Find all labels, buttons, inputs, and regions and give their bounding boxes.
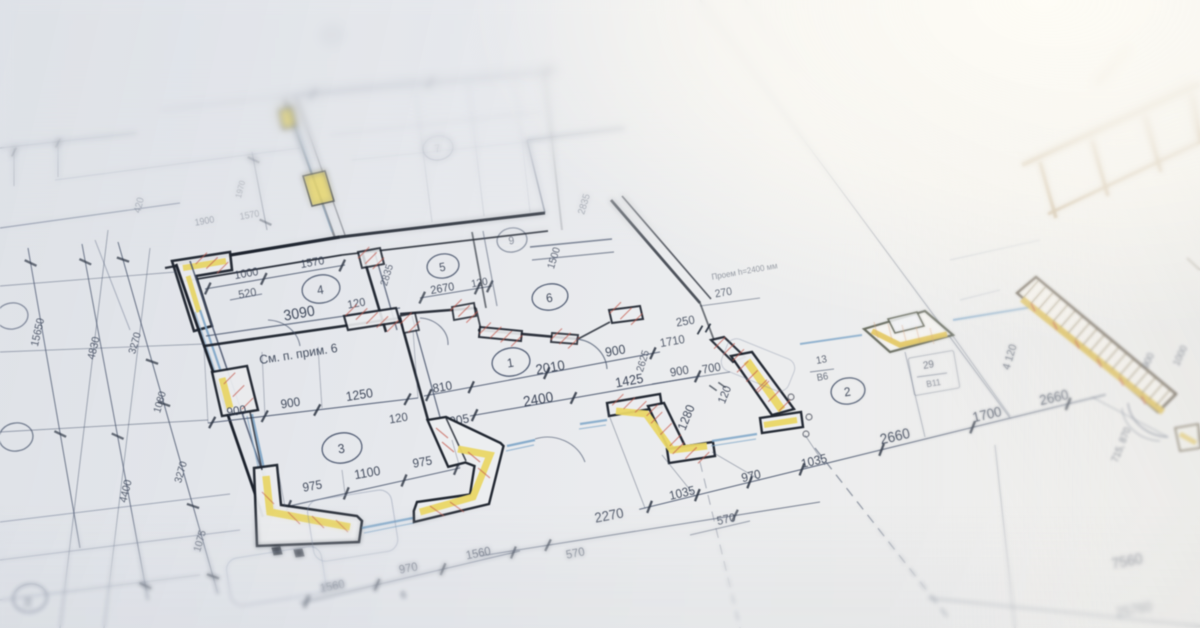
svg-text:2270: 2270 <box>593 505 625 526</box>
svg-text:3270: 3270 <box>127 331 144 356</box>
svg-text:900: 900 <box>226 402 248 419</box>
svg-text:См. п. прим. 6: См. п. прим. 6 <box>258 341 338 367</box>
svg-text:3270: 3270 <box>173 460 190 485</box>
svg-text:2625: 2625 <box>635 349 652 374</box>
svg-text:900: 900 <box>604 342 627 360</box>
svg-text:5: 5 <box>438 260 446 274</box>
svg-text:520: 520 <box>238 286 258 301</box>
svg-text:3090: 3090 <box>282 303 316 325</box>
svg-text:2400: 2400 <box>522 388 555 410</box>
svg-text:1560: 1560 <box>465 544 493 562</box>
svg-text:1970: 1970 <box>234 179 248 199</box>
svg-text:810: 810 <box>431 378 453 396</box>
svg-text:570: 570 <box>565 545 587 562</box>
svg-text:13: 13 <box>815 354 828 367</box>
svg-text:120: 120 <box>347 296 367 311</box>
svg-text:1700: 1700 <box>971 404 1003 426</box>
svg-text:970: 970 <box>398 560 420 577</box>
svg-text:570: 570 <box>716 511 738 528</box>
svg-text:900: 900 <box>1140 351 1157 371</box>
svg-text:1000: 1000 <box>1171 344 1190 368</box>
svg-text:1900: 1900 <box>194 214 215 228</box>
svg-text:900: 900 <box>280 394 302 411</box>
svg-text:1000: 1000 <box>234 266 260 282</box>
svg-text:4 120: 4 120 <box>1000 343 1019 371</box>
svg-text:Проем h=2400 мм: Проем h=2400 мм <box>711 261 779 282</box>
svg-text:120: 120 <box>388 410 409 426</box>
svg-text:1280: 1280 <box>675 402 698 432</box>
svg-text:7560: 7560 <box>1110 551 1144 573</box>
svg-text:1570: 1570 <box>239 208 260 222</box>
svg-text:715, 870: 715, 870 <box>1110 425 1134 464</box>
svg-text:1100: 1100 <box>353 464 381 483</box>
svg-text:975: 975 <box>411 453 433 471</box>
svg-text:1425: 1425 <box>614 370 644 390</box>
svg-text:975: 975 <box>301 477 323 495</box>
svg-text:1080: 1080 <box>152 390 169 415</box>
svg-text:3: 3 <box>337 441 346 456</box>
svg-text:900: 900 <box>669 363 690 380</box>
svg-text:2670: 2670 <box>430 281 456 297</box>
svg-text:1: 1 <box>506 355 515 370</box>
svg-text:16: 16 <box>22 596 35 608</box>
svg-text:1035: 1035 <box>800 451 829 471</box>
svg-text:250: 250 <box>675 313 696 330</box>
svg-text:2835: 2835 <box>576 193 593 216</box>
svg-text:2: 2 <box>843 384 852 399</box>
svg-text:1250: 1250 <box>345 386 374 405</box>
svg-text:700: 700 <box>701 360 722 377</box>
svg-text:4: 4 <box>316 282 325 297</box>
svg-text:270: 270 <box>714 285 733 300</box>
svg-text:29: 29 <box>922 359 935 372</box>
svg-text:1710: 1710 <box>659 333 687 351</box>
svg-text:7: 7 <box>434 142 442 155</box>
svg-text:2010: 2010 <box>534 357 566 377</box>
svg-text:В11: В11 <box>925 377 941 390</box>
svg-text:1075: 1075 <box>192 529 209 554</box>
svg-text:6: 6 <box>400 589 407 601</box>
svg-text:25760: 25760 <box>1115 598 1154 620</box>
svg-text:420: 420 <box>132 196 147 215</box>
svg-text:2835: 2835 <box>379 263 396 288</box>
svg-text:В6: В6 <box>816 371 829 384</box>
svg-text:970: 970 <box>740 467 763 486</box>
svg-text:6: 6 <box>545 290 554 305</box>
